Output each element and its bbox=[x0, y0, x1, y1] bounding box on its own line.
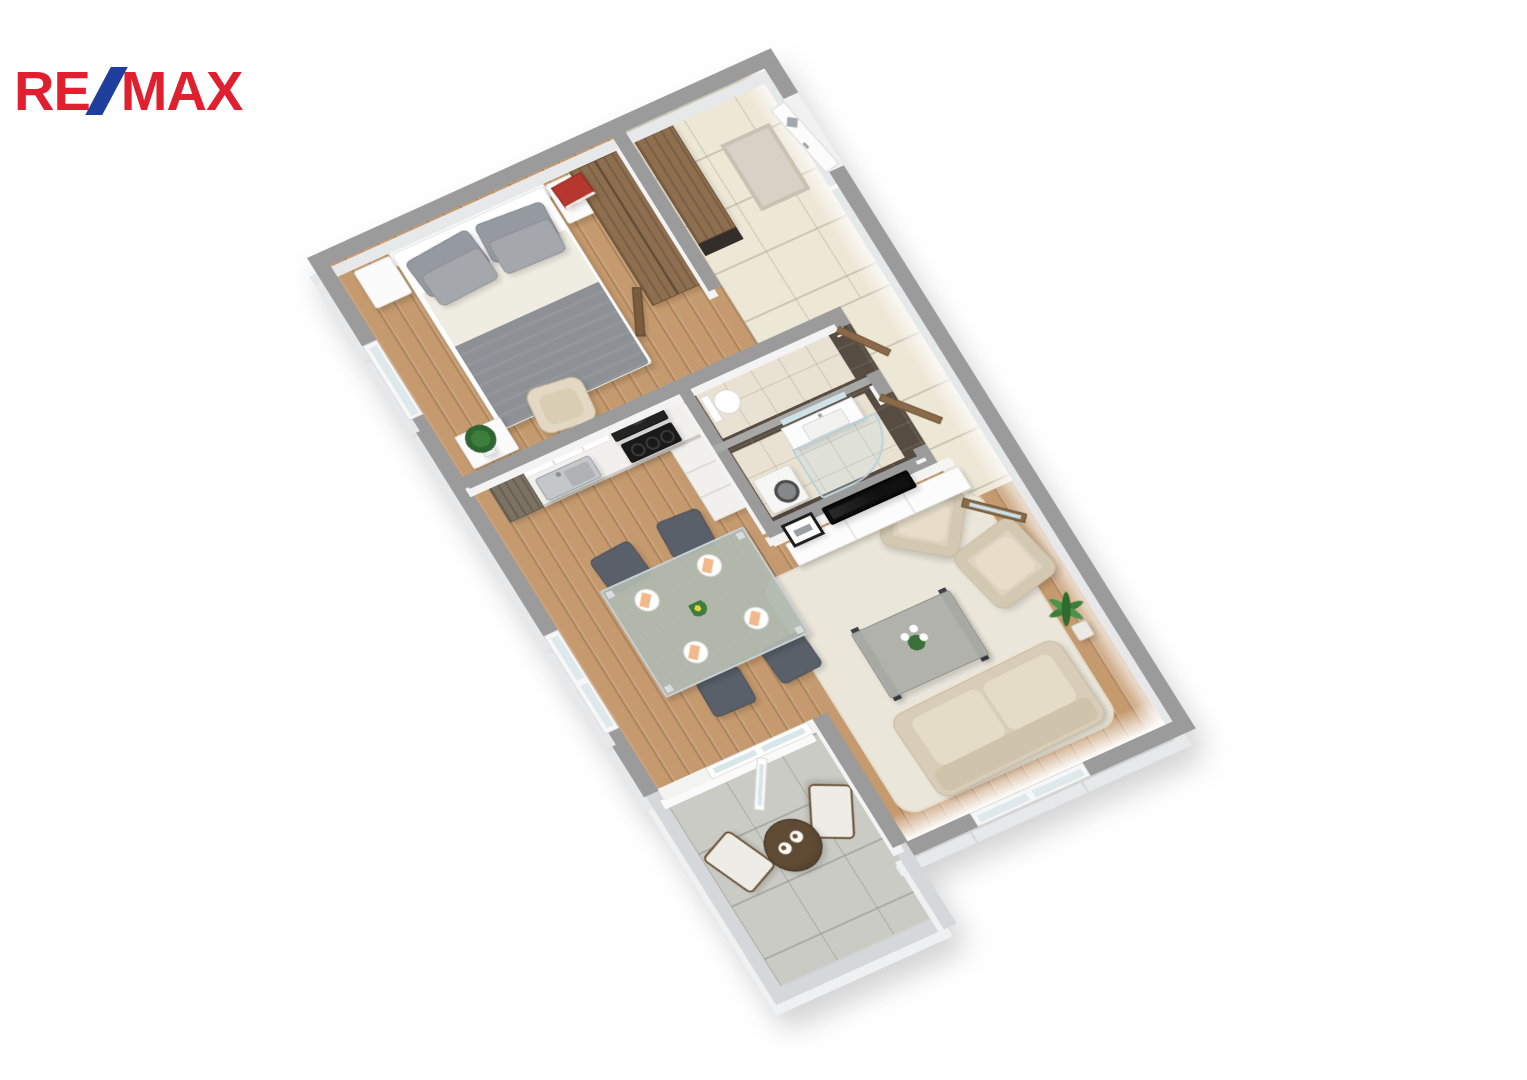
remax-logo: REMAX bbox=[14, 58, 242, 123]
table-leg bbox=[664, 684, 674, 693]
flower-centerpiece bbox=[688, 598, 713, 619]
logo-max: MAX bbox=[121, 58, 242, 123]
logo-re: RE bbox=[14, 58, 90, 123]
entry-door-handle bbox=[802, 142, 809, 149]
table-leg bbox=[605, 590, 615, 599]
entry-door-diamond-window bbox=[787, 117, 798, 128]
table-leg bbox=[794, 625, 804, 634]
armchair-cushion bbox=[537, 386, 587, 426]
washer-door bbox=[770, 476, 805, 506]
palm-frond bbox=[1059, 582, 1073, 636]
armchair-seat bbox=[971, 534, 1038, 593]
table-leg bbox=[735, 531, 745, 540]
floor-plan bbox=[330, 68, 1173, 917]
picture-photo bbox=[793, 524, 813, 537]
leaf-glass bbox=[757, 764, 763, 806]
sink-faucet bbox=[555, 471, 562, 477]
